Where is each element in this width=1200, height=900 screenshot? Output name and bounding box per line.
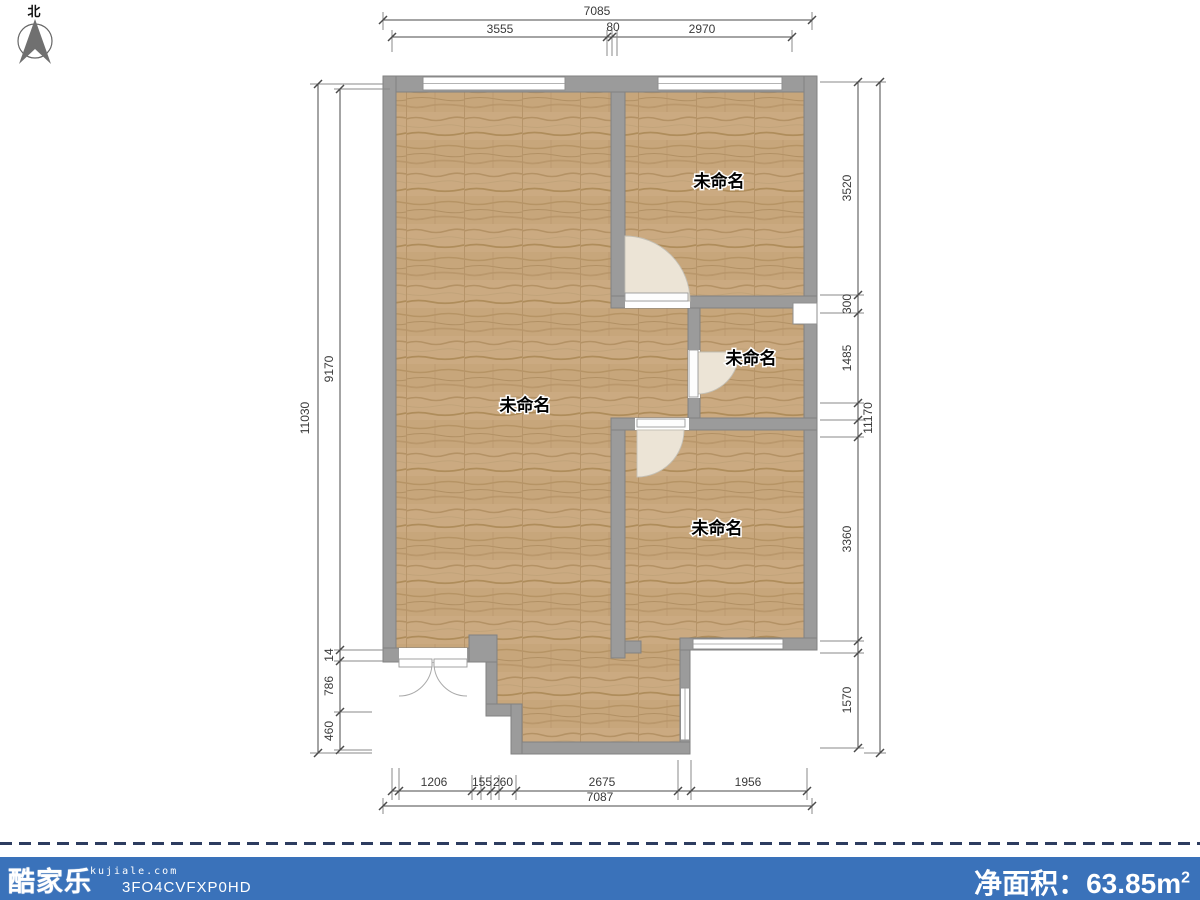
dim-right-overall: 11170 <box>861 402 875 434</box>
footer-bar: 酷家乐 kujiale.com 3FO4CVFXP0HD 净面积：63.85m2 <box>0 857 1200 900</box>
dim-right-seg4: 3360 <box>840 525 854 552</box>
room-label-bedroom-bottom: 未命名 <box>691 518 743 538</box>
north-compass: 北 <box>18 4 52 64</box>
floor-living-room <box>395 90 611 652</box>
dim-right-seg1: 3520 <box>840 174 854 201</box>
net-area-label: 净面积： <box>974 868 1086 899</box>
dimension-left-labels: 11030 9170 14 786 460 <box>298 355 336 741</box>
dim-top-seg3: 2970 <box>689 22 716 36</box>
window-top-right <box>658 77 782 90</box>
dim-right-seg2: 300 <box>840 294 854 314</box>
wall-stub-corner <box>625 641 641 653</box>
wall-divider-bottom <box>611 430 625 658</box>
wall-hallway-bottom <box>511 742 690 754</box>
dim-right-seg3: 1485 <box>840 344 854 371</box>
dim-bottom-seg1: 1206 <box>421 775 448 789</box>
wall-left <box>383 76 396 662</box>
dim-top-seg2: 80 <box>606 20 620 34</box>
wall-hallway-step-down <box>511 704 522 754</box>
window-bedroom-bottom <box>693 639 783 649</box>
room-label-bedroom-top: 未命名 <box>693 171 745 191</box>
net-area-unit-exponent: 2 <box>1181 870 1190 887</box>
wall-right <box>804 76 817 650</box>
dim-right-seg5: 1570 <box>840 686 854 713</box>
dim-left-overall: 11030 <box>298 401 312 434</box>
floor-living-extension <box>611 308 688 418</box>
dim-left-seg3: 786 <box>322 676 336 696</box>
dim-bottom-seg5: 1956 <box>735 775 762 789</box>
room-label-living: 未命名 <box>499 395 551 415</box>
wall-divider-top <box>611 92 625 296</box>
window-top-left <box>423 77 565 90</box>
dim-left-seg2: 14 <box>322 648 336 662</box>
net-area: 净面积：63.85m2 <box>974 862 1190 900</box>
dim-top-overall: 7085 <box>584 4 611 18</box>
kujiale-logo: 酷家乐 <box>8 860 92 899</box>
dimension-top <box>379 12 816 56</box>
window-hallway <box>681 688 690 740</box>
door-entry-double <box>399 648 467 696</box>
floor-hallway <box>497 638 680 742</box>
wall-entry-pillar <box>469 635 497 662</box>
kujiale-website: kujiale.com <box>90 866 178 877</box>
net-area-unit: m <box>1156 868 1181 899</box>
dim-bottom-seg2: 155 <box>472 775 492 789</box>
dim-bottom-overall: 7087 <box>587 790 614 804</box>
floor-plan-canvas: 未命名 未命名 未命名 未命名 7085 3555 80 2970 <box>0 0 1200 845</box>
plan-code: 3FO4CVFXP0HD <box>122 879 252 896</box>
dim-top-seg1: 3555 <box>487 22 514 36</box>
screenshot-stage: 未命名 未命名 未命名 未命名 7085 3555 80 2970 <box>0 0 1200 900</box>
net-area-value: 63.85 <box>1086 868 1156 899</box>
wall-niche <box>793 303 817 324</box>
room-label-bathroom: 未命名 <box>725 348 777 368</box>
dim-bottom-seg4: 2675 <box>589 775 616 789</box>
dim-left-seg4: 460 <box>322 721 336 741</box>
dim-left-seg1: 9170 <box>322 355 336 382</box>
north-arrow-icon <box>19 19 51 64</box>
compass-north-label: 北 <box>27 4 40 19</box>
dim-bottom-seg3: 260 <box>493 775 513 789</box>
footer-dashed-divider <box>0 842 1200 845</box>
